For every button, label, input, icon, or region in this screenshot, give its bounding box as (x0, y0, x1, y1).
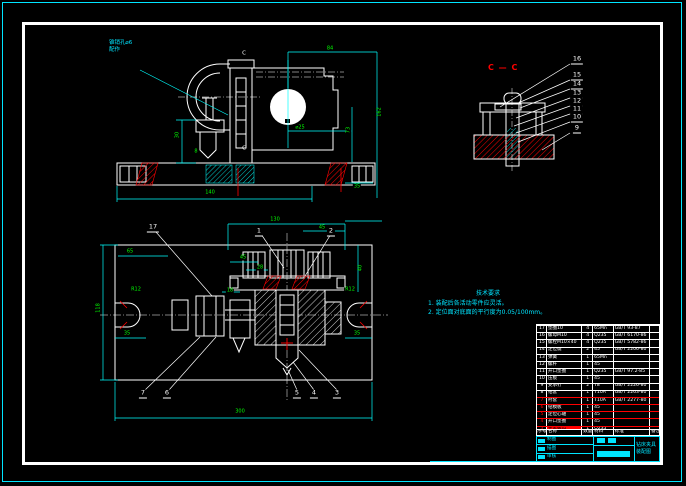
section-balloon-7: 9 (573, 125, 581, 134)
bom-header-row: 序号 名称 数量 材料 标准 备注 (536, 429, 660, 436)
bom-cell-qty: 1 (581, 398, 592, 404)
bom-cell-no: 16 (537, 333, 546, 339)
bom-cell-name: 螺母M10 (546, 333, 581, 339)
title-block-tick (608, 438, 616, 443)
bom-cell-qty: 1 (581, 419, 592, 425)
cad-drawing-sheet: 锥销孔⌀6 配作 C — C C C 84 73 162 140 30 ⌀25 … (0, 0, 686, 486)
bom-cell-standard (613, 419, 649, 425)
front-view (117, 60, 375, 196)
bom-cell-material: 45 (592, 376, 613, 382)
bom-row: 6 钻模板 1 45 (537, 404, 659, 411)
bom-cell-standard (613, 376, 649, 382)
leader-note: 锥销孔⌀6 配作 (109, 40, 132, 54)
dim-plan-r12-right: R12 (344, 288, 356, 293)
bom-cell-material: T10A (592, 391, 613, 397)
bom-row: 5 定位心轴 1 45 (537, 411, 659, 418)
callout-7: 7 (139, 390, 147, 399)
field-marker-icon (538, 455, 545, 459)
bom-row: 7 衬套 1 T10A GB/T 2277-80 (537, 397, 659, 404)
bom-header-no: 序号 (537, 430, 546, 435)
bom-cell-standard: GB/T 5782-86 (613, 340, 649, 346)
field-marker-icon (538, 439, 545, 443)
callout-5: 5 (293, 390, 301, 399)
dim-plan-bottom: 300 (234, 410, 246, 415)
bom-cell-name: 支承钉 (546, 384, 581, 390)
bom-cell-no: 4 (537, 419, 546, 425)
bom-cell-qty: 1 (581, 412, 592, 418)
bom-cell-standard (613, 362, 649, 368)
bom-cell-name: 弹簧 (546, 355, 581, 361)
bom-cell-qty: 4 (581, 340, 592, 346)
drawing-name-line2: 装配图 (636, 449, 658, 456)
bom-cell-no: 14 (537, 348, 546, 354)
bom-cell-remark (649, 376, 659, 382)
note-item-1: 1. 装配后各活动零件应灵活。 (428, 299, 548, 309)
bom-cell-name: 垫圈10 (546, 326, 581, 332)
bom-row: 16 螺母M10 4 Q235 GB/T 6170-86 (537, 332, 659, 339)
bom-row: 9 支承钉 2 T8 GB/T 2226-80 (537, 383, 659, 390)
bom-cell-material: Q235 (592, 333, 613, 339)
bom-cell-material: 45 (592, 348, 613, 354)
titleblock-extension-line (430, 461, 536, 462)
bom-cell-remark (649, 419, 659, 425)
leader-note-line2: 配作 (109, 47, 132, 54)
dim-front-hole: ⌀25 (294, 126, 305, 131)
dim-front-35: 35 (353, 185, 361, 190)
bom-cell-remark (649, 405, 659, 411)
drawing-name-line1: 钻床夹具 (636, 442, 658, 449)
bom-cell-standard (613, 405, 649, 411)
section-balloon-6: 10 (571, 114, 583, 123)
bom-cell-no: 5 (537, 412, 546, 418)
bom-cell-name: 螺栓M10×40 (546, 340, 581, 346)
bom-cell-no: 6 (537, 405, 546, 411)
title-block-top-strip (594, 437, 634, 446)
bom-cell-no: 13 (537, 355, 546, 361)
bom-cell-standard: GB/T 2206-80 (613, 348, 649, 354)
section-mark-top: C (242, 51, 246, 57)
field-marker-icon (538, 447, 545, 451)
bom-cell-qty: 1 (581, 355, 592, 361)
dim-plan-45: 45 (239, 256, 247, 261)
section-view (474, 64, 570, 172)
bom-cell-no: 17 (537, 326, 546, 332)
bom-cell-no: 12 (537, 362, 546, 368)
title-block-tick (597, 438, 605, 443)
bom-cell-no: 9 (537, 384, 546, 390)
bom-cell-name: 钻套 (546, 391, 581, 397)
bom-cell-name: 钻模板 (546, 405, 581, 411)
bom-header-material: 材料 (592, 430, 613, 435)
bom-cell-no: 10 (537, 376, 546, 382)
field-label: 审核 (547, 455, 556, 460)
title-block-field-row: 描图 (537, 444, 593, 452)
title-block-name: 钻床夹具 装配图 (635, 437, 659, 461)
title-block-middle (594, 437, 635, 461)
bom-cell-name: 开口垫圈 (546, 369, 581, 375)
bom-cell-material: 65Mn (592, 326, 613, 332)
bom-cell-remark (649, 340, 659, 346)
bom-cell-standard: GB/T 2277-80 (613, 398, 649, 404)
dim-plan-l35: 35 (123, 332, 131, 337)
bom-cell-material: 45 (592, 412, 613, 418)
section-mark-bottom: C (242, 146, 246, 152)
title-block-field-row: 制图 (537, 437, 593, 444)
bom-cell-no: 8 (537, 391, 546, 397)
bom-cell-remark (649, 362, 659, 368)
bom-cell-no: 15 (537, 340, 546, 346)
bom-row: 4 开口垫圈 1 45 (537, 418, 659, 425)
bom-cell-material: Q235 (592, 369, 613, 375)
leader-note-line1: 锥销孔⌀6 (109, 40, 132, 47)
field-label: 制图 (547, 438, 556, 443)
technical-notes: 技术要求 1. 装配后各活动零件应灵活。 2. 定位面对底面的平行度为0.05/… (428, 289, 548, 318)
bom-cell-standard: GB/T 93-87 (613, 326, 649, 332)
bom-cell-remark (649, 391, 659, 397)
bom-cell-material: 45 (592, 362, 613, 368)
bom-cell-standard (613, 412, 649, 418)
bom-row: 10 压板 1 45 (537, 375, 659, 382)
bom-cell-remark (649, 398, 659, 404)
bom-cell-remark (649, 369, 659, 375)
bom-row: 8 钻套 1 T10A GB/T 2263-80 (537, 390, 659, 397)
bom-cell-name: 压板 (546, 376, 581, 382)
callout-17: 17 (147, 224, 159, 233)
bom-cell-name: 螺杆 (546, 362, 581, 368)
callout-3: 3 (333, 390, 341, 399)
notes-title: 技术要求 (428, 289, 548, 299)
bom-cell-no: 11 (537, 369, 546, 375)
bom-cell-remark (649, 412, 659, 418)
dim-plan-r35: 35 (353, 332, 361, 337)
bom-cell-qty: 1 (581, 362, 592, 368)
titleblock-name-highlight (597, 451, 630, 457)
bom-cell-remark (649, 384, 659, 390)
bom-row: 17 垫圈10 4 65Mn GB/T 93-87 (537, 325, 659, 332)
callout-1: 1 (255, 228, 263, 237)
bom-cell-name: 定位心轴 (546, 412, 581, 418)
bom-header-remark: 备注 (649, 430, 659, 435)
dim-plan-r12-left: R12 (130, 288, 142, 293)
bom-header-standard: 标准 (613, 430, 649, 435)
bom-header-name: 名称 (546, 430, 581, 435)
bom-row: 12 螺杆 1 45 (537, 361, 659, 368)
bom-cell-no: 7 (537, 398, 546, 404)
bom-cell-qty: 1 (581, 376, 592, 382)
callout-4: 4 (310, 390, 318, 399)
dim-front-8: 8 (193, 150, 198, 155)
title-block: 制图 描图 审核 钻床夹具 装配图 (536, 436, 660, 462)
dim-front-col: 30 (176, 131, 181, 139)
bom-row: 15 螺栓M10×40 4 Q235 GB/T 5782-86 (537, 339, 659, 346)
bom-cell-qty: 2 (581, 384, 592, 390)
bom-cell-standard: GB/T 2226-80 (613, 384, 649, 390)
dim-front-bottom: 140 (204, 191, 216, 196)
bom-cell-material: T8 (592, 384, 613, 390)
bom-cell-qty: 2 (581, 348, 592, 354)
dim-plan-18: 18 (226, 289, 234, 294)
bom-cell-standard: GB/T 6170-86 (613, 333, 649, 339)
dim-front-top: 84 (326, 47, 334, 52)
callout-2: 2 (327, 228, 335, 237)
bom-cell-remark (649, 333, 659, 339)
bom-cell-material: 65Mn (592, 355, 613, 361)
bom-cell-material: 45 (592, 405, 613, 411)
bom-cell-remark (649, 355, 659, 361)
bom-cell-remark (649, 348, 659, 354)
bom-row: 11 开口垫圈 1 Q235 GB/T 97.2-85 (537, 368, 659, 375)
bom-header-qty: 数量 (581, 430, 592, 435)
bom-cell-qty: 1 (581, 369, 592, 375)
bom-cell-standard: GB/T 2263-80 (613, 391, 649, 397)
title-block-fields: 制图 描图 审核 (537, 437, 594, 461)
bom-cell-material: 45 (592, 419, 613, 425)
bom-cell-name: 衬套 (546, 398, 581, 404)
bom-cell-qty: 4 (581, 333, 592, 339)
bom-cell-remark (649, 326, 659, 332)
bom-cell-qty: 4 (581, 326, 592, 332)
bom-row: 14 定位键 2 45 GB/T 2206-80 (537, 347, 659, 354)
section-label: C — C (488, 64, 518, 72)
bom-cell-standard: GB/T 97.2-85 (613, 369, 649, 375)
bom-cell-name: 定位键 (546, 348, 581, 354)
bom-row: 13 弹簧 1 65Mn (537, 354, 659, 361)
section-balloon-0: 16 (571, 56, 583, 65)
bom-cell-name: 开口垫圈 (546, 419, 581, 425)
bom-cell-material: Q235 (592, 340, 613, 346)
field-label: 描图 (547, 447, 556, 452)
bom-cell-qty: 1 (581, 405, 592, 411)
dim-plan-topright: 45 (318, 226, 326, 231)
dim-plan-28: 28 (256, 266, 264, 271)
dim-front-overall: 162 (378, 106, 383, 118)
dim-plan-65: 65 (126, 250, 134, 255)
callout-6: 6 (163, 390, 171, 399)
bom-cell-qty: 1 (581, 391, 592, 397)
dim-plan-left: 118 (97, 302, 102, 314)
dim-front-right: 73 (347, 126, 352, 134)
title-block-field-row: 审核 (537, 453, 593, 461)
dim-plan-right: 40 (359, 264, 364, 272)
bom-cell-material: T10A (592, 398, 613, 404)
note-item-2: 2. 定位面对底面的平行度为0.05/100mm。 (428, 308, 548, 318)
bom-cell-standard (613, 355, 649, 361)
dim-plan-top: 130 (269, 218, 281, 223)
